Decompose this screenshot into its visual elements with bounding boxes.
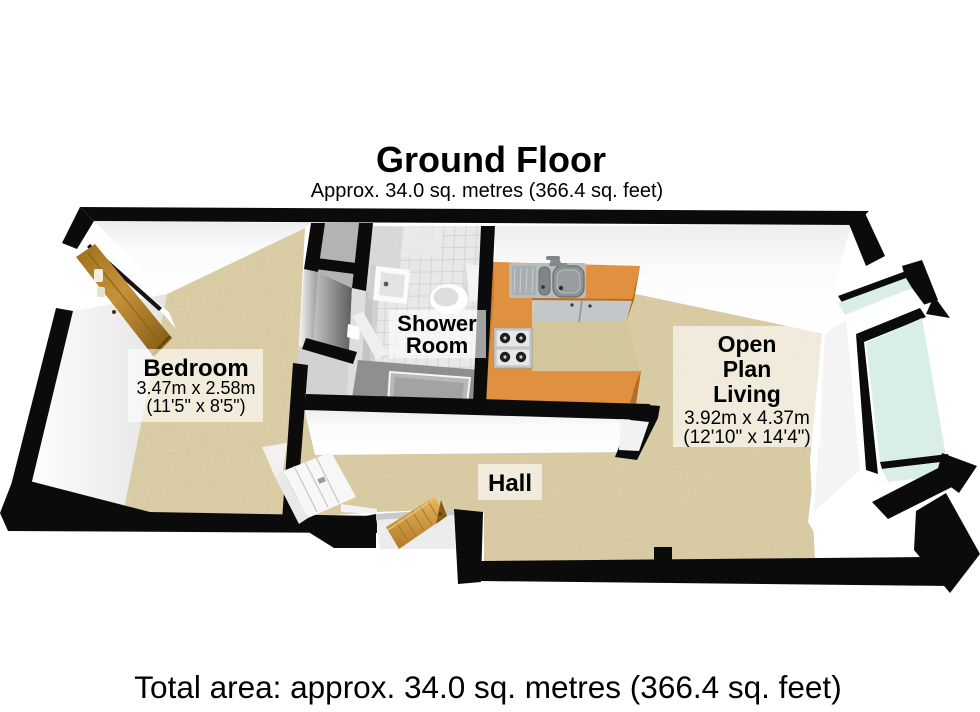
svg-text:(12'10" x 14'4"): (12'10" x 14'4") [683, 427, 810, 448]
svg-text:Living: Living [713, 381, 781, 407]
svg-text:3.92m x 4.37m: 3.92m x 4.37m [684, 408, 810, 429]
svg-text:Room: Room [406, 333, 468, 358]
svg-text:Hall: Hall [488, 470, 532, 497]
svg-text:Total area: approx. 34.0 sq. m: Total area: approx. 34.0 sq. metres (366… [134, 669, 841, 705]
svg-text:(11'5" x 8'5"): (11'5" x 8'5") [146, 396, 245, 416]
svg-text:Open: Open [718, 331, 777, 357]
svg-text:Approx. 34.0 sq. metres (366.4: Approx. 34.0 sq. metres (366.4 sq. feet) [311, 180, 663, 202]
svg-text:Plan: Plan [723, 356, 772, 382]
svg-text:3.47m x 2.58m: 3.47m x 2.58m [136, 378, 255, 398]
svg-text:Ground Floor: Ground Floor [376, 139, 606, 180]
